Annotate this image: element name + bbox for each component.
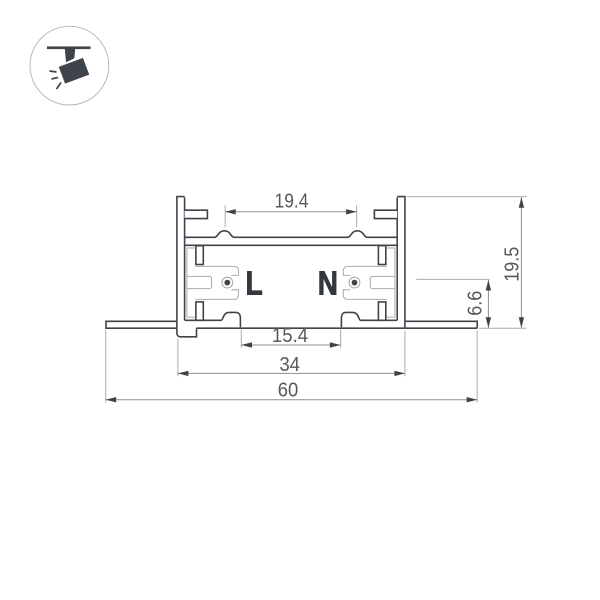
svg-text:19.4: 19.4 [275, 190, 309, 213]
svg-text:60: 60 [278, 379, 299, 402]
svg-text:6.6: 6.6 [464, 291, 487, 316]
svg-text:15.4: 15.4 [272, 324, 308, 347]
svg-text:L: L [246, 266, 263, 303]
svg-text:N: N [318, 266, 338, 303]
svg-text:34: 34 [279, 353, 300, 376]
svg-text:19.5: 19.5 [501, 247, 524, 282]
